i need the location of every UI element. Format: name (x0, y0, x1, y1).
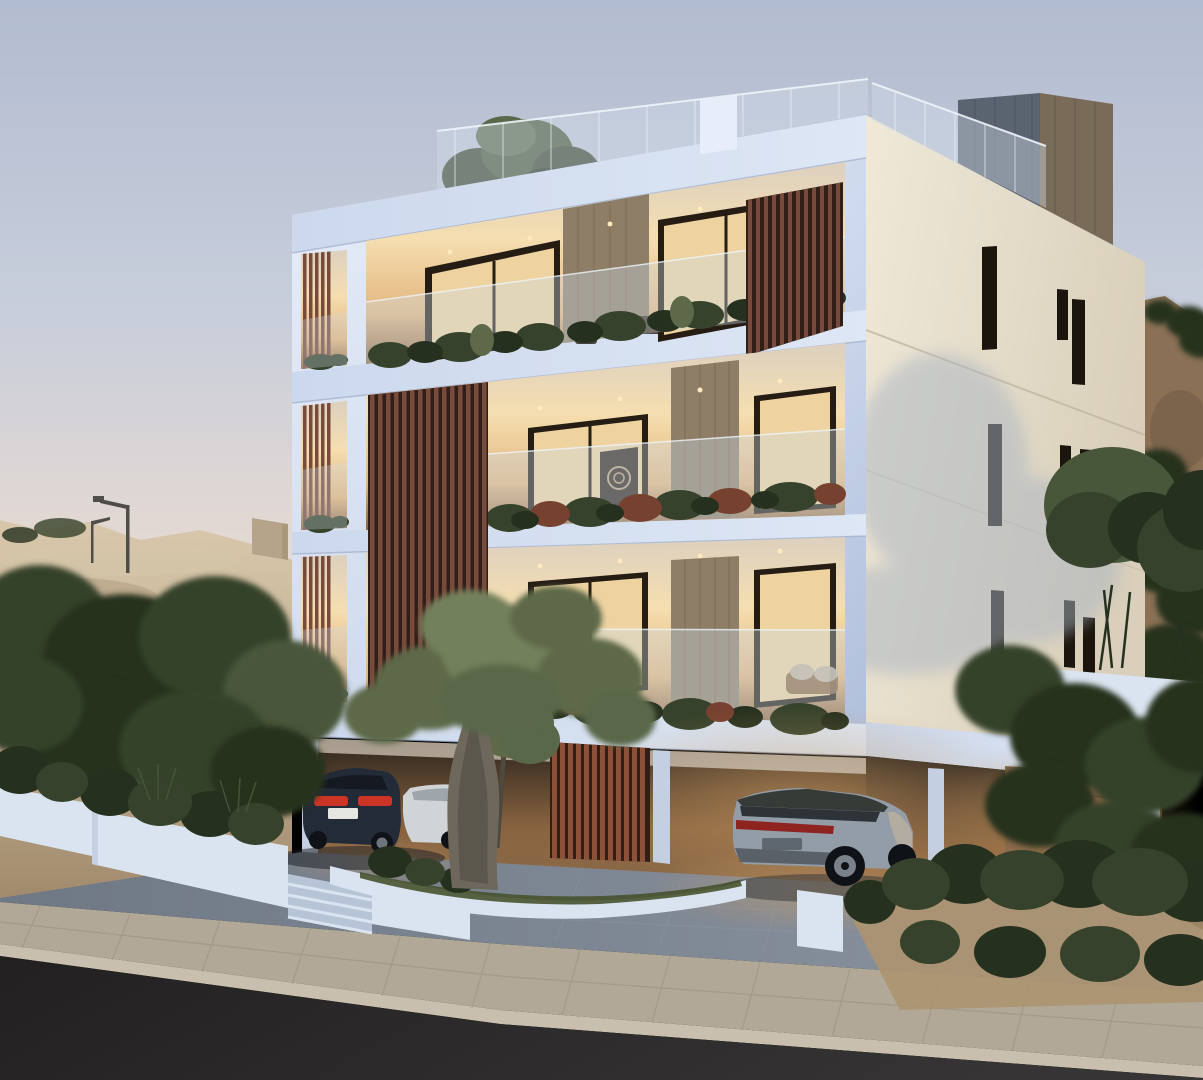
white-pedestal (797, 890, 843, 952)
lamp-pole (126, 505, 130, 573)
sedan-wheel (309, 831, 327, 849)
lamp-head (93, 496, 104, 502)
suv-hub (841, 862, 849, 870)
right-mound-bushes (844, 840, 1203, 1010)
roof-white-post (700, 95, 737, 154)
sedan-license-plate (328, 808, 358, 819)
hill-bush (34, 518, 86, 538)
architectural-render-image: Modern apartment building exterior rende… (0, 0, 1203, 1080)
module-glass (301, 312, 347, 369)
hill-bush (2, 527, 38, 543)
module-glass (301, 462, 347, 530)
garage-slat-partition (550, 738, 650, 864)
suv-plate-area (762, 838, 802, 850)
left-module (301, 246, 349, 705)
retaining-wall-shade (282, 524, 288, 560)
lamp-pole-2 (91, 521, 94, 563)
render-canvas: Modern apartment building exterior rende… (0, 0, 1203, 1080)
